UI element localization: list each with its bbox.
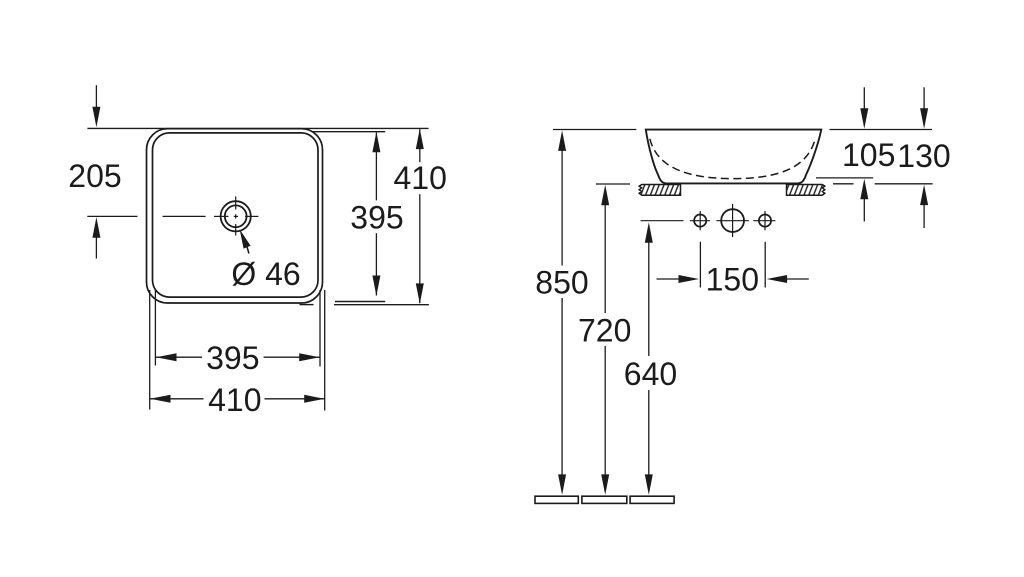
svg-text:410: 410 — [394, 160, 447, 196]
svg-text:Ø 46: Ø 46 — [231, 256, 300, 292]
svg-text:640: 640 — [624, 356, 677, 392]
svg-text:395: 395 — [206, 340, 259, 376]
svg-text:150: 150 — [706, 262, 759, 298]
svg-text:720: 720 — [578, 312, 631, 348]
svg-text:205: 205 — [68, 158, 121, 194]
svg-text:410: 410 — [208, 382, 261, 418]
svg-text:105: 105 — [842, 137, 895, 173]
svg-text:130: 130 — [897, 138, 950, 174]
svg-text:850: 850 — [535, 265, 588, 301]
svg-text:395: 395 — [350, 200, 403, 236]
